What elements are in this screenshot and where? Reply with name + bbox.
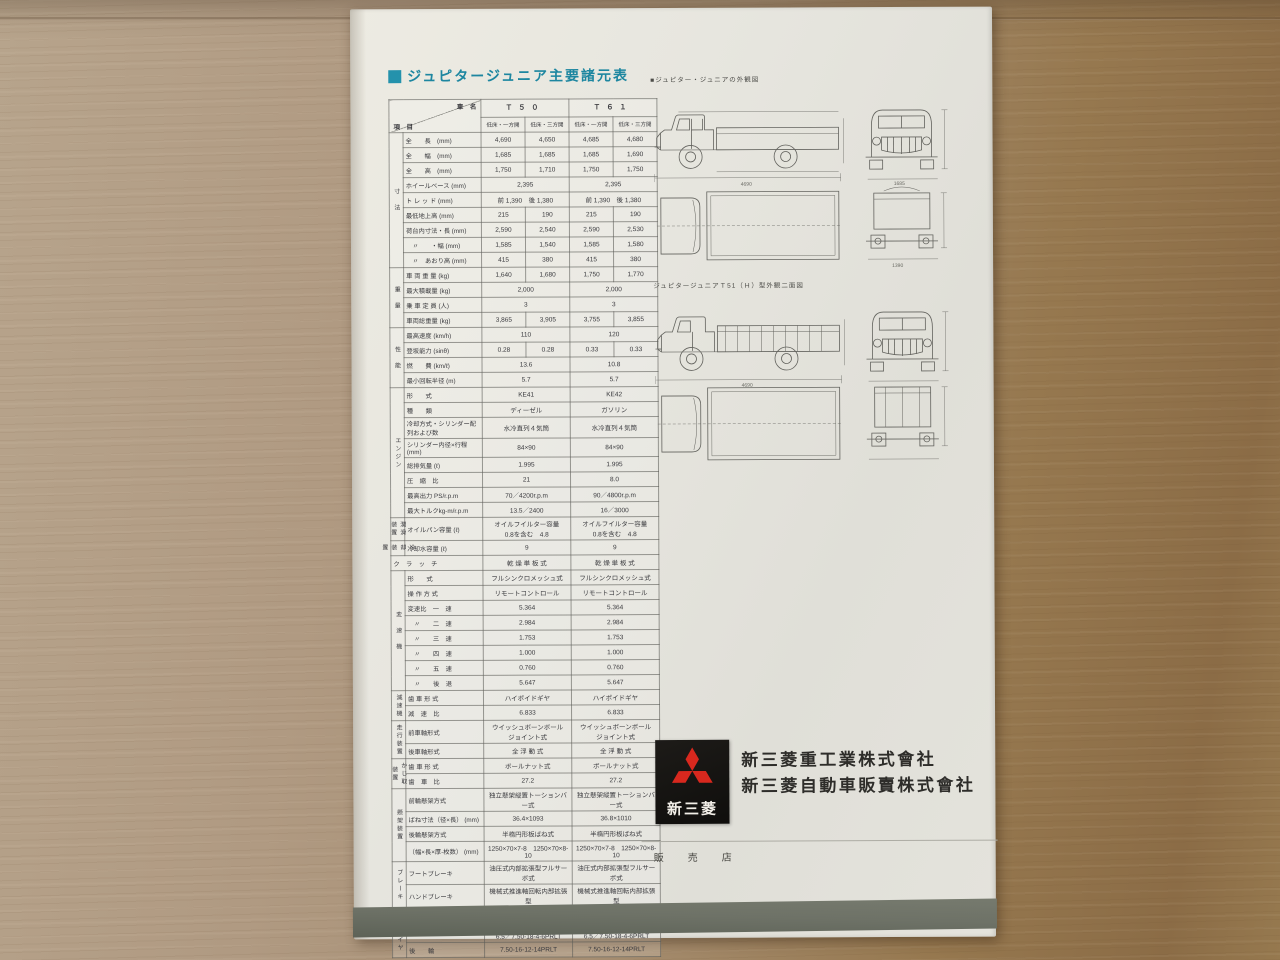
- spec-value: 4,685: [569, 132, 613, 147]
- spec-value: 2,000: [570, 282, 658, 297]
- spec-value: 1,750: [613, 162, 657, 177]
- cargo-bed: [716, 127, 838, 150]
- row-label: 形 式: [404, 387, 482, 402]
- row-label: 全 高 (mm): [403, 162, 481, 177]
- spec-value: 前 1,390 後 1,380: [569, 192, 657, 207]
- section-label: 走行装置: [392, 721, 406, 759]
- spec-value: 90／4800r.p.m: [571, 487, 659, 502]
- spec-value: 3,755: [570, 312, 614, 327]
- headlight-left: [873, 137, 881, 145]
- spec-value: 215: [481, 207, 525, 222]
- row-label: 後車軸形式: [406, 743, 484, 758]
- section-label: エンジン: [390, 388, 405, 518]
- spec-table: 車 名 項 目 Ｔ５０ Ｔ６１ 低床・一方開 低床・三方開 低床・一方開 低床・…: [388, 98, 661, 958]
- spec-value: 油圧式内部拡張型フルサーボ式: [484, 861, 572, 884]
- spec-value: 4,650: [525, 132, 569, 147]
- spec-value: 1.000: [571, 645, 659, 660]
- spec-row: 変速比 一 速5.3645.364: [391, 600, 659, 616]
- title-square-icon: [388, 70, 401, 83]
- spec-row: 全 高 (mm)1,7501,7101,7501,750: [389, 162, 657, 178]
- truck-front-view-1: 1685: [853, 85, 951, 187]
- spec-value: ハイポイドギヤ: [483, 690, 571, 705]
- spec-value: 415: [570, 252, 614, 267]
- spec-row: （幅×長×厚-枚数） (mm)1250×70×7-8 1250×70×8-101…: [392, 841, 660, 862]
- spec-value: 水冷直列４気筒: [570, 417, 658, 438]
- spec-value: 7.50-16-12-14PRLT: [485, 942, 573, 957]
- row-label: ばね寸法（径×長） (mm): [406, 811, 484, 826]
- logo-text: 新三菱: [667, 798, 718, 824]
- spec-row: ト レ ッ ド (mm)前 1,390 後 1,380前 1,390 後 1,3…: [389, 192, 657, 208]
- spec-value: 2,395: [481, 177, 569, 192]
- spec-value: 5.647: [571, 675, 659, 690]
- spec-value: 84×90: [570, 438, 658, 457]
- row-label: 〃 ・幅 (mm): [403, 237, 481, 252]
- spec-row: 種 類ディーゼルガソリン: [390, 402, 658, 418]
- section-label: 減速機: [391, 691, 405, 721]
- spec-value: 8.0: [570, 472, 658, 487]
- spec-value: 3,865: [482, 312, 526, 327]
- spec-row: 荷台内寸法・長 (mm)2,5902,5402,5902,530: [389, 222, 657, 238]
- row-label: フートブレーキ: [406, 861, 484, 884]
- spec-value: 4,690: [481, 132, 525, 147]
- bed-rear: [874, 193, 930, 229]
- spec-value: 4,680: [613, 132, 657, 147]
- spec-row: ホイールベース (mm)2,3952,395: [389, 177, 657, 193]
- spec-value: 1,690: [613, 147, 657, 162]
- spec-value: 1250×70×7-8 1250×70×8-10: [484, 841, 572, 861]
- mitsubishi-logo-block: 新三菱: [655, 740, 729, 824]
- spec-row: 〃 四 速1.0001.000: [391, 645, 659, 661]
- row-label: 〃 四 速: [405, 645, 483, 660]
- row-label: 〃 二 速: [405, 615, 483, 630]
- section-label: 変 速 機: [391, 571, 406, 691]
- cab-outline: [660, 115, 713, 150]
- spec-value: 380: [526, 252, 570, 267]
- spec-value: 1.753: [483, 630, 571, 645]
- spec-row: 懸架装置前輪懸架方式独立懸架縦置トーションバー式独立懸架縦置トーションバー式: [392, 788, 660, 812]
- spec-value: 1.995: [570, 457, 658, 472]
- spec-value: 3,905: [526, 312, 570, 327]
- spec-row: ク ラ ッ チ乾 燥 単 板 式乾 燥 単 板 式: [391, 555, 659, 571]
- row-label: 種 類: [404, 402, 482, 417]
- row-label: 車両総重量 (kg): [404, 312, 482, 327]
- spec-value: 110: [482, 327, 570, 342]
- spec-value: 全 浮 動 式: [484, 743, 572, 758]
- spec-row: 後輪懸架方式半楕円形板ばね式半楕円形板ばね式: [392, 826, 660, 842]
- spec-value: 2.984: [571, 615, 659, 630]
- section-label: 寸 法: [389, 133, 404, 268]
- sub-header-2: 低床・三方開: [525, 117, 569, 132]
- spec-row: 〃 ・幅 (mm)1,5851,5401,5851,580: [389, 237, 657, 253]
- spec-value: 0.760: [571, 660, 659, 675]
- spec-value: 1.000: [483, 645, 571, 660]
- spec-row: 後車軸形式全 浮 動 式全 浮 動 式: [392, 743, 660, 759]
- row-label: 操 作 方 式: [405, 585, 483, 600]
- spec-value: 13.5／2400: [483, 502, 571, 517]
- spec-value: 0.760: [483, 660, 571, 675]
- sub-header-4: 低床・三方開: [613, 116, 657, 131]
- row-label: （幅×長×厚-枚数） (mm): [406, 841, 484, 861]
- spec-value: ボールナット式: [572, 758, 660, 773]
- spec-value: 乾 燥 単 板 式: [571, 555, 659, 570]
- corner-label-top: 車 名: [457, 101, 477, 111]
- spec-row: エンジン形 式KE41KE42: [390, 387, 658, 403]
- spec-value: 1,685: [525, 147, 569, 162]
- row-label: 最低地上高 (mm): [403, 207, 481, 222]
- model-header-t61: Ｔ６１: [569, 99, 657, 117]
- spec-value: 6.833: [572, 705, 660, 720]
- dimension-lines: [654, 111, 843, 182]
- spec-row: 総排気量 (ℓ)1.9951.995: [390, 457, 658, 473]
- row-label: 最大積載量 (kg): [404, 282, 482, 297]
- mitsubishi-three-diamond-icon: [664, 744, 720, 796]
- dimension-lines: [869, 387, 948, 459]
- spec-row: シリンダー内径×行程 (mm)84×9084×90: [390, 438, 658, 458]
- spec-value: 84×90: [482, 438, 570, 457]
- spec-row: 登坂能力 (sinθ)0.280.280.330.33: [390, 342, 658, 358]
- drawing-caption-2: ジュピタージュニアＴ51（Ｈ）型外観二面図: [653, 279, 804, 290]
- spec-value: 2,590: [569, 222, 613, 237]
- spec-value: 36.8×1010: [572, 811, 660, 826]
- spec-value: ボールナット式: [484, 758, 572, 773]
- row-label: 荷台内寸法・長 (mm): [403, 222, 481, 237]
- row-label: 〃 三 速: [405, 630, 483, 645]
- page-title: ジュピタージュニア主要諸元表: [407, 65, 629, 86]
- company-line-2: 新三菱自動車販賣株式會社: [741, 773, 975, 800]
- row-label: 圧 縮 比: [404, 472, 482, 487]
- row-label: 〃 五 速: [405, 660, 483, 675]
- spec-value: オイルフイルター容量 0.8を含む 4.8: [571, 517, 659, 540]
- spec-value: 1,750: [481, 162, 525, 177]
- spec-row: 歯 車 比27.227.2: [392, 773, 660, 789]
- section-label: 潤滑装置: [391, 518, 405, 541]
- spec-value: 3,855: [614, 312, 658, 327]
- spec-row: 最高出力 PS/r.p.m70／4200r.p.m90／4800r.p.m: [391, 487, 659, 503]
- drawing-caption-1: ■ジュピター・ジュニアの外観図: [650, 74, 759, 84]
- spec-value: 415: [482, 252, 526, 267]
- spec-row: 寸 法全 長 (mm)4,6904,6504,6854,680: [389, 132, 657, 148]
- spec-value: 0.33: [614, 342, 658, 357]
- row-label: 後 輪: [407, 942, 485, 957]
- truck-front-view-2: [854, 291, 952, 387]
- spec-value: 2,540: [525, 222, 569, 237]
- spec-value: 16／3000: [571, 502, 659, 517]
- spec-value: ガソリン: [570, 402, 658, 417]
- row-label: ホイールベース (mm): [403, 177, 481, 192]
- dealer-label: 販 売 店: [654, 849, 739, 864]
- spec-row: 最大トルクkg-m/r.p.m13.5／240016／3000: [391, 502, 659, 518]
- row-label: 最大トルクkg-m/r.p.m: [405, 502, 483, 517]
- spec-value: 70／4200r.p.m: [483, 487, 571, 502]
- spec-value: KE41: [482, 387, 570, 402]
- spec-value: 1.995: [482, 457, 570, 472]
- spec-row: 燃 費 (km/ℓ)13.610.8: [390, 357, 658, 373]
- row-label: 登坂能力 (sinθ): [404, 342, 482, 357]
- headlight-right: [923, 137, 931, 145]
- spec-row: 乗 車 定 員 (人)33: [390, 297, 658, 313]
- spec-value: オイルフイルター容量 0.8を含む 4.8: [483, 517, 571, 540]
- row-label: 総排気量 (ℓ): [404, 457, 482, 472]
- section-label: 性 能: [390, 328, 404, 388]
- front-wheel: [679, 145, 702, 168]
- spec-value: 2,000: [482, 282, 570, 297]
- spec-value: 全 浮 動 式: [572, 743, 660, 758]
- corner-label-bottom: 項 目: [393, 121, 413, 131]
- spec-row: 操 作 方 式リモートコントロールリモートコントロール: [391, 585, 659, 601]
- company-line-1: 新三菱重工業株式會社: [741, 747, 975, 774]
- spec-value: 2,590: [481, 222, 525, 237]
- spec-row: 減 速 比6.8336.833: [392, 705, 660, 721]
- row-label: 車 両 重 量 (kg): [404, 267, 482, 282]
- spec-row: 〃 後 退5.6475.647: [391, 675, 659, 691]
- spec-value: 9: [483, 540, 571, 555]
- spec-value: 5.647: [483, 675, 571, 690]
- section-label: 懸架装置: [392, 789, 406, 862]
- spec-value: 120: [570, 327, 658, 342]
- spec-value: 独立懸架縦置トーションバー式: [484, 788, 572, 811]
- spec-row: 車両総重量 (kg)3,8653,9053,7553,855: [390, 312, 658, 328]
- row-label: 歯 車 形 式: [406, 758, 484, 773]
- spec-row: 冷却方式・シリンダー配列および数水冷直列４気筒水冷直列４気筒: [390, 417, 658, 439]
- spec-value: 1,585: [569, 237, 613, 252]
- spec-value: 1,685: [569, 147, 613, 162]
- spec-value: フルシンクロメッシュ式: [483, 570, 571, 585]
- table-corner-cell: 車 名 項 目: [389, 99, 481, 132]
- row-label: 最高速度 (km/h): [404, 327, 482, 342]
- row-label: 歯 車 比: [406, 773, 484, 788]
- spec-value: 1,750: [570, 267, 614, 282]
- row-label: 冷却方式・シリンダー配列および数: [404, 417, 482, 438]
- spec-value: 0.28: [526, 342, 570, 357]
- spec-value: 5.7: [482, 372, 570, 387]
- spec-row: 減速機歯 車 形 式ハイポイドギヤハイポイドギヤ: [391, 690, 659, 706]
- row-label: ト レ ッ ド (mm): [403, 192, 481, 207]
- spec-row: ばね寸法（径×長） (mm)36.4×109336.8×1010: [392, 811, 660, 827]
- row-label: 減 速 比: [406, 705, 484, 720]
- spec-value: 1,710: [525, 162, 569, 177]
- row-label: 後輪懸架方式: [406, 826, 484, 841]
- spec-value: 1,685: [481, 147, 525, 162]
- row-label: 最高出力 PS/r.p.m: [405, 487, 483, 502]
- section-label: かじ取装置: [392, 759, 406, 789]
- spec-value: 6.833: [484, 705, 572, 720]
- spec-value: 1,680: [526, 267, 570, 282]
- spec-value: 21: [482, 472, 570, 487]
- spec-value: 前 1,390 後 1,380: [481, 192, 569, 207]
- spec-row: かじ取装置歯 車 形 式ボールナット式ボールナット式: [392, 758, 660, 774]
- spec-row: 後 輪7.50-16-12-14PRLT7.50-16-12-14PRLT: [393, 942, 661, 958]
- spec-row: 〃 五 速0.7600.760: [391, 660, 659, 676]
- row-label: 〃 あおり高 (mm): [404, 252, 482, 267]
- section-label: ブレーキ: [392, 862, 406, 908]
- spec-row: 変 速 機形 式フルシンクロメッシュ式フルシンクロメッシュ式: [391, 570, 659, 586]
- row-label: 乗 車 定 員 (人): [404, 297, 482, 312]
- row-label: 〃 後 退: [405, 675, 483, 690]
- svg-text:1390: 1390: [892, 263, 903, 269]
- spec-value: 独立懸架縦置トーションバー式: [572, 788, 660, 811]
- spec-value: 2.984: [483, 615, 571, 630]
- spec-value: 9: [571, 540, 659, 555]
- spec-row: 性 能最高速度 (km/h)110120: [390, 327, 658, 343]
- spec-value: 1250×70×7-8 1250×70×8-10: [572, 841, 660, 861]
- spec-value: 2,530: [613, 222, 657, 237]
- spec-value: ディーゼル: [482, 402, 570, 417]
- spec-value: リモートコントロール: [483, 585, 571, 600]
- truck-plan-view-1: [649, 183, 847, 272]
- row-label: 前輪懸架方式: [406, 788, 484, 811]
- spec-value: ウイッシュボーンボール ジョイント式: [484, 720, 572, 743]
- spec-row: 最低地上高 (mm)215190215190: [389, 207, 657, 223]
- row-label: 冷却水容量 (ℓ): [405, 540, 483, 555]
- spec-row: 走行装置前車軸形式ウイッシュボーンボール ジョイント式ウイッシュボーンボール ジ…: [392, 720, 660, 744]
- spec-row: 圧 縮 比218.0: [390, 472, 658, 488]
- spec-value: 水冷直列４気筒: [482, 417, 570, 438]
- spec-row: 冷却装置冷却水容量 (ℓ)99: [391, 540, 659, 556]
- row-label: シリンダー内径×行程 (mm): [404, 438, 482, 457]
- spec-value: 3: [482, 297, 570, 312]
- spec-row: ブレーキフートブレーキ油圧式内部拡張型フルサーボ式油圧式内部拡張型フルサーボ式: [392, 861, 660, 885]
- spec-row: 〃 三 速1.7531.753: [391, 630, 659, 646]
- truck-side-view-2: 4690: [649, 291, 847, 388]
- spec-value: 5.7: [570, 372, 658, 387]
- spec-value: 1,750: [569, 162, 613, 177]
- spec-row: 〃 二 速2.9842.984: [391, 615, 659, 631]
- spec-table-wrap: 車 名 項 目 Ｔ５０ Ｔ６１ 低床・一方開 低床・三方開 低床・一方開 低床・…: [388, 98, 660, 958]
- spec-value: フルシンクロメッシュ式: [571, 570, 659, 585]
- rear-wheel: [774, 145, 797, 168]
- brochure-page: ジュピタージュニア主要諸元表 ■ジュピター・ジュニアの外観図 ジュピタージュニア…: [350, 7, 996, 940]
- spec-value: 190: [525, 207, 569, 222]
- spec-value: 1.753: [571, 630, 659, 645]
- spec-value: 0.33: [570, 342, 614, 357]
- spec-value: 3: [570, 297, 658, 312]
- row-label: 形 式: [405, 570, 483, 585]
- spec-row: 〃 あおり高 (mm)415380415380: [390, 252, 658, 268]
- row-label: 全 幅 (mm): [403, 147, 481, 162]
- spec-row: 最小回転半径 (m)5.75.7: [390, 372, 658, 388]
- spec-value: 2,395: [569, 177, 657, 192]
- spec-value: 乾 燥 単 板 式: [483, 555, 571, 570]
- spec-value: 27.2: [484, 773, 572, 788]
- spec-row: 全 幅 (mm)1,6851,6851,6851,690: [389, 147, 657, 163]
- spec-value: 1,540: [525, 237, 569, 252]
- spec-row: 潤滑装置オイルパン容量 (ℓ)オイルフイルター容量 0.8を含む 4.8オイルフ…: [391, 517, 659, 541]
- row-label: 前車軸形式: [406, 720, 484, 743]
- spec-value: 1,640: [482, 267, 526, 282]
- spec-value: 190: [613, 207, 657, 222]
- spec-value: 380: [614, 252, 658, 267]
- spec-value: 13.6: [482, 357, 570, 372]
- spec-value: 1,580: [613, 237, 657, 252]
- spec-value: 36.4×1093: [484, 811, 572, 826]
- spec-value: 7.50-16-12-14PRLT: [573, 942, 661, 957]
- spec-value: 油圧式内部拡張型フルサーボ式: [572, 861, 660, 884]
- spec-value: 0.28: [482, 342, 526, 357]
- spec-value: 27.2: [572, 773, 660, 788]
- row-label: 全 長 (mm): [403, 132, 481, 147]
- sub-header-3: 低床・一方開: [569, 117, 613, 132]
- truck-plan-view-2: [650, 379, 848, 472]
- model-header-t50: Ｔ５０: [481, 99, 569, 117]
- spec-row: 最大積載量 (kg)2,0002,000: [390, 282, 658, 298]
- spec-value: リモートコントロール: [571, 585, 659, 600]
- row-label: 歯 車 形 式: [405, 690, 483, 705]
- dealer-divider: [642, 840, 998, 843]
- spec-value: 半楕円形板ばね式: [484, 826, 572, 841]
- row-label: 最小回転半径 (m): [404, 372, 482, 387]
- spec-value: 215: [569, 207, 613, 222]
- dimension-lines: [868, 193, 947, 259]
- spec-value: 5.364: [483, 600, 571, 615]
- row-label: ハンドブレーキ: [406, 884, 484, 907]
- truck-rear-view-1: 1390: [854, 183, 952, 271]
- sub-header-1: 低床・一方開: [481, 117, 525, 132]
- row-label: 変速比 一 速: [405, 600, 483, 615]
- truck-side-view-1: 4690: [648, 85, 846, 188]
- row-label: ク ラ ッ チ: [391, 555, 483, 570]
- page-title-row: ジュピタージュニア主要諸元表: [388, 65, 629, 86]
- spec-row: 重 量車 両 重 量 (kg)1,6401,6801,7501,770: [390, 267, 658, 283]
- spec-value: 1,770: [614, 267, 658, 282]
- spec-value: 1,585: [481, 237, 525, 252]
- spec-value: ウイッシュボーンボール ジョイント式: [572, 720, 660, 743]
- spec-value: KE42: [570, 387, 658, 402]
- row-label: 燃 費 (km/ℓ): [404, 357, 482, 372]
- section-label: 冷却装置: [391, 541, 405, 556]
- section-label: 重 量: [390, 268, 404, 328]
- spec-value: ハイポイドギヤ: [571, 690, 659, 705]
- spec-value: 5.364: [571, 600, 659, 615]
- row-label: オイルパン容量 (ℓ): [405, 517, 483, 540]
- spec-value: 10.8: [570, 357, 658, 372]
- spec-value: 半楕円形板ばね式: [572, 826, 660, 841]
- company-names: 新三菱重工業株式會社 新三菱自動車販賣株式會社: [741, 747, 975, 801]
- truck-rear-view-2: [855, 379, 953, 471]
